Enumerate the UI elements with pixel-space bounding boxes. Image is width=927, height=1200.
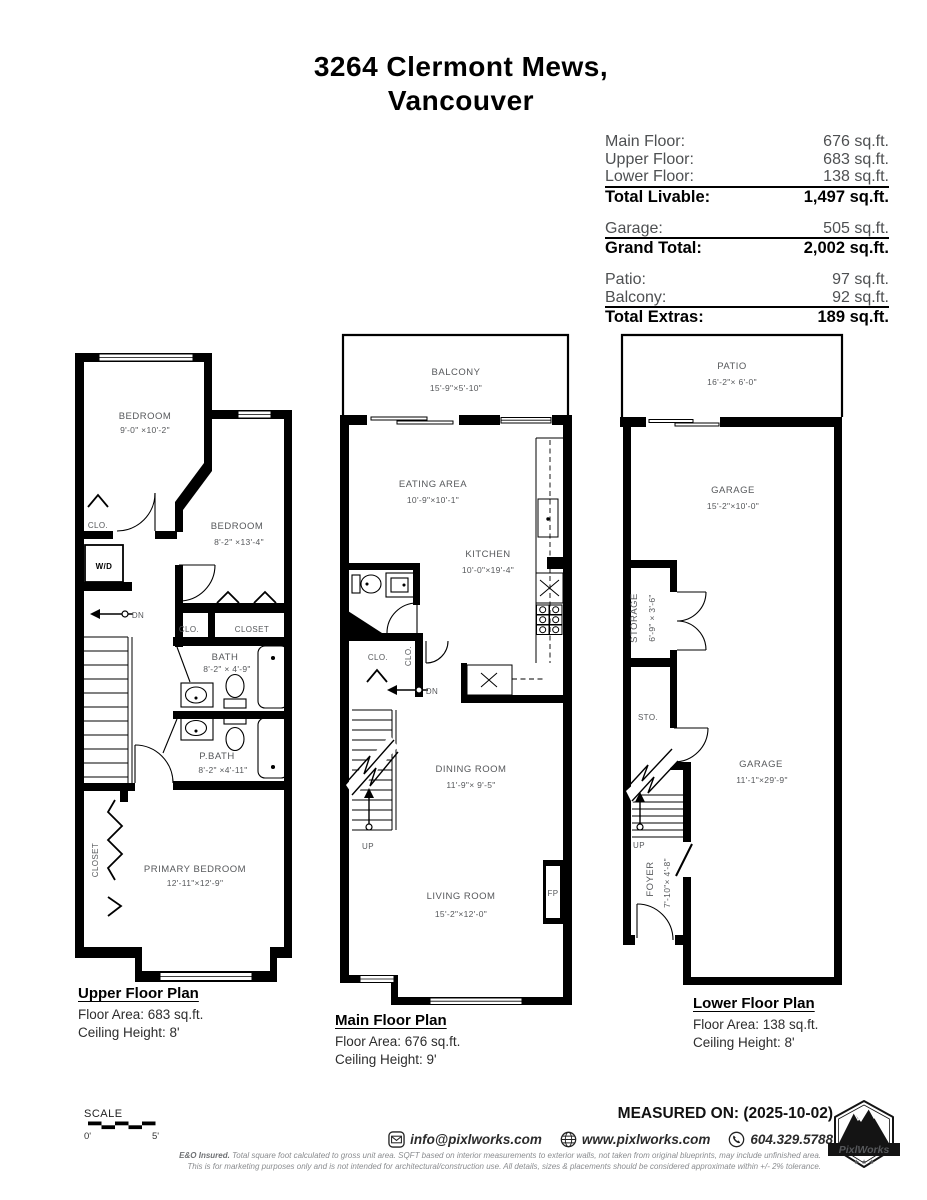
room-label-balcony: BALCONY	[432, 367, 481, 378]
caption-area: Floor Area: 676 sq.ft.	[335, 1033, 460, 1051]
lower-floor-caption: Lower Floor Plan Floor Area: 138 sq.ft. …	[693, 995, 818, 1052]
patio-railing	[622, 335, 842, 417]
row-value: 138 sq.ft.	[823, 168, 889, 186]
room-label-primary: PRIMARY BEDROOM	[144, 864, 246, 875]
summary-group-livable: Main Floor:676 sq.ft. Upper Floor:683 sq…	[605, 133, 889, 207]
summary-group-grand: Garage:505 sq.ft. Grand Total:2,002 sq.f…	[605, 220, 889, 259]
room-label-storage: STORAGE	[629, 593, 640, 643]
room-dims-balcony: 15'-9"×5'-10"	[430, 383, 482, 393]
row-label: Main Floor:	[605, 133, 685, 151]
room-dims-foyer: 7'-10"× 4'-8"	[662, 858, 672, 908]
washer-dryer-label: W/D	[96, 562, 113, 571]
room-dims-kitchen: 10'-0"×19'-4"	[462, 565, 514, 575]
closet-door-mark	[367, 670, 387, 682]
email-text: info@pixlworks.com	[410, 1132, 542, 1147]
row-value: 2,002 sq.ft.	[804, 239, 889, 258]
room-dims-eating: 10'-9"×10'-1"	[407, 495, 459, 505]
phone-text: 604.329.5788	[750, 1132, 833, 1147]
row-value: 1,497 sq.ft.	[804, 188, 889, 207]
room-label-patio: PATIO	[717, 361, 747, 372]
email-item: info@pixlworks.com	[388, 1131, 542, 1148]
row-label: Lower Floor:	[605, 168, 694, 186]
storage-label: STO.	[638, 713, 658, 722]
main-floor-caption: Main Floor Plan Floor Area: 676 sq.ft. C…	[335, 1012, 460, 1069]
room-dims-bedroom2: 8'-2" ×13'-4"	[214, 537, 264, 547]
row-value: 97 sq.ft.	[832, 271, 889, 289]
room-label-bedroom1: BEDROOM	[119, 411, 172, 422]
staircase	[82, 637, 132, 783]
caption-area: Floor Area: 138 sq.ft.	[693, 1016, 818, 1034]
powder-room-fixtures	[352, 573, 414, 597]
room-dims-storage: 6'-9" × 3'-6"	[647, 594, 657, 641]
disclaimer-text: Total square foot calculated to gross un…	[232, 1151, 821, 1160]
phone-icon	[728, 1131, 745, 1148]
scale-end: 5'	[152, 1131, 159, 1142]
room-label-dining: DINING ROOM	[436, 764, 507, 775]
room-label-bedroom2: BEDROOM	[211, 521, 264, 532]
room-dims-bath: 8'-2" × 4'-9"	[203, 664, 250, 674]
website-text: www.pixlworks.com	[582, 1132, 711, 1147]
disclaimer-line2: This is for marketing purposes only and …	[187, 1162, 821, 1171]
phone-item: 604.329.5788	[728, 1131, 833, 1148]
room-label-living: LIVING ROOM	[427, 891, 496, 902]
closet-label: CLO.	[368, 653, 388, 662]
up-arrow	[364, 788, 374, 830]
caption-title: Main Floor Plan	[335, 1012, 460, 1029]
row-label: Grand Total:	[605, 239, 702, 258]
row-label: Balcony:	[605, 289, 666, 307]
contact-row: info@pixlworks.com www.pixlworks.com 604…	[388, 1131, 833, 1148]
table-row: Upper Floor:683 sq.ft.	[605, 151, 889, 169]
logo-stars: ★ ★ ★	[853, 1158, 874, 1166]
row-label: Total Livable:	[605, 188, 710, 207]
closet-label-vertical: CLOSET	[91, 843, 100, 877]
up-label: UP	[633, 841, 645, 850]
lower-floor-plan-drawing: PATIO 16'-2"× 6'-0" GARAGE 15'-2"×10'-0"…	[620, 333, 845, 998]
floor-plan-page: 3264 Clermont Mews, Vancouver Main Floor…	[0, 0, 927, 1200]
room-dims-bedroom1: 9'-0" ×10'-2"	[120, 425, 170, 435]
row-value: 92 sq.ft.	[832, 289, 889, 307]
staircase	[346, 710, 398, 830]
disclaimer-line1: E&O Insured. Total square foot calculate…	[179, 1151, 821, 1160]
table-row: Lower Floor:138 sq.ft.	[605, 168, 889, 188]
room-label-kitchen: KITCHEN	[465, 549, 510, 560]
website-item: www.pixlworks.com	[560, 1131, 711, 1148]
scale-start: 0'	[84, 1131, 91, 1142]
down-label: DN	[132, 611, 144, 620]
fireplace-label: FP	[547, 889, 558, 898]
table-row: Balcony:92 sq.ft.	[605, 289, 889, 309]
room-label-bath: BATH	[212, 652, 239, 663]
row-value: 189 sq.ft.	[817, 308, 889, 327]
row-label: Patio:	[605, 271, 646, 289]
down-label: DN	[426, 687, 438, 696]
bottom-windows	[360, 976, 522, 1005]
summary-group-extras: Patio:97 sq.ft. Balcony:92 sq.ft. Total …	[605, 271, 889, 327]
email-icon	[388, 1131, 405, 1148]
row-value: 505 sq.ft.	[823, 220, 889, 238]
room-dims-living: 15'-2"×12'-0"	[435, 909, 487, 919]
caption-ceiling: Ceiling Height: 9'	[335, 1051, 460, 1069]
room-dims-pbath: 8'-2" ×4'-11"	[198, 765, 247, 775]
caption-title: Lower Floor Plan	[693, 995, 818, 1012]
caption-ceiling: Ceiling Height: 8'	[693, 1034, 818, 1052]
closet-label: CLOSET	[235, 625, 269, 634]
row-value: 683 sq.ft.	[823, 151, 889, 169]
logo-name: PixlWorks	[839, 1144, 890, 1156]
room-label-foyer: FOYER	[645, 861, 656, 896]
row-label: Total Extras:	[605, 308, 704, 327]
upper-floor-plan-drawing: BEDROOM 9'-0" ×10'-2" BEDROOM 8'-2" ×13'…	[75, 353, 300, 993]
page-title: 3264 Clermont Mews, Vancouver	[251, 50, 671, 118]
pixlworks-logo: PixlWorks ★ ★ ★	[825, 1097, 903, 1177]
table-total-row: Total Extras:189 sq.ft.	[605, 308, 889, 327]
table-total-row: Total Livable:1,497 sq.ft.	[605, 188, 889, 207]
title-line1: 3264 Clermont Mews,	[251, 50, 671, 84]
table-row: Patio:97 sq.ft.	[605, 271, 889, 289]
table-total-row: Grand Total:2,002 sq.ft.	[605, 239, 889, 258]
room-dims-garage2: 11'-1"×29'-9"	[736, 775, 788, 785]
main-floor-plan-drawing: BALCONY 15'-9"×5'-10" EATING AREA 10'-9"…	[340, 333, 580, 1023]
patio-door	[646, 417, 720, 427]
staircase	[626, 749, 683, 837]
globe-icon	[560, 1131, 577, 1148]
caption-area: Floor Area: 683 sq.ft.	[78, 1006, 203, 1024]
room-label-eating: EATING AREA	[399, 479, 467, 490]
row-label: Upper Floor:	[605, 151, 694, 169]
caption-ceiling: Ceiling Height: 8'	[78, 1024, 203, 1042]
mountain-icon	[838, 1109, 890, 1145]
area-summary-table: Main Floor:676 sq.ft. Upper Floor:683 sq…	[605, 133, 889, 340]
closet-label-vertical: CLO.	[404, 646, 413, 666]
row-label: Garage:	[605, 220, 663, 238]
title-line2: Vancouver	[251, 84, 671, 118]
measured-on-date: MEASURED ON: (2025-10-02)	[618, 1105, 833, 1123]
disclaimer-bold: E&O Insured.	[179, 1151, 230, 1160]
upper-floor-caption: Upper Floor Plan Floor Area: 683 sq.ft. …	[78, 985, 203, 1042]
table-row: Main Floor:676 sq.ft.	[605, 133, 889, 151]
room-dims-dining: 11'-9"× 9'-5"	[446, 780, 495, 790]
room-label-garage1: GARAGE	[711, 485, 755, 496]
closet-label: CLO.	[88, 521, 108, 530]
room-label-garage2: GARAGE	[739, 759, 783, 770]
down-arrow	[90, 609, 133, 619]
room-dims-primary: 12'-11"×12'-9"	[167, 878, 224, 888]
table-row: Garage:505 sq.ft.	[605, 220, 889, 240]
caption-title: Upper Floor Plan	[78, 985, 203, 1002]
closet-label: CLO.	[179, 625, 199, 634]
room-label-pbath: P.BATH	[199, 751, 234, 762]
up-label: UP	[362, 842, 374, 851]
room-dims-garage1: 15'-2"×10'-0"	[707, 501, 759, 511]
scale-label: SCALE	[84, 1108, 123, 1120]
scale-bar	[88, 1121, 160, 1130]
room-dims-patio: 16'-2"× 6'-0"	[707, 377, 757, 387]
row-value: 676 sq.ft.	[823, 133, 889, 151]
